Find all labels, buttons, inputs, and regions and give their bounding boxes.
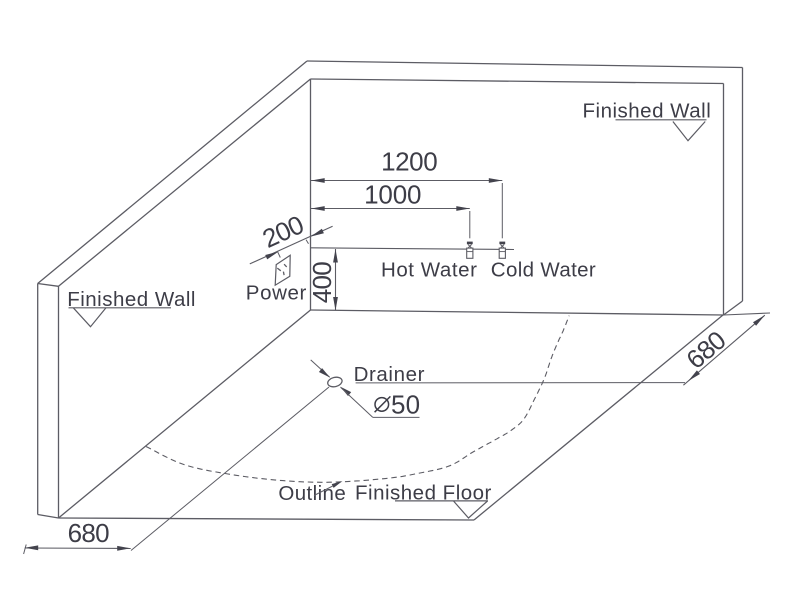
svg-text:Power: Power — [246, 281, 307, 304]
svg-text:Cold Water: Cold Water — [491, 259, 596, 282]
svg-text:1000: 1000 — [364, 179, 421, 209]
svg-text:1200: 1200 — [381, 147, 437, 177]
svg-text:Hot Water: Hot Water — [381, 259, 477, 282]
svg-text:400: 400 — [307, 262, 337, 304]
svg-text:680: 680 — [68, 518, 110, 548]
svg-text:50: 50 — [391, 390, 420, 420]
